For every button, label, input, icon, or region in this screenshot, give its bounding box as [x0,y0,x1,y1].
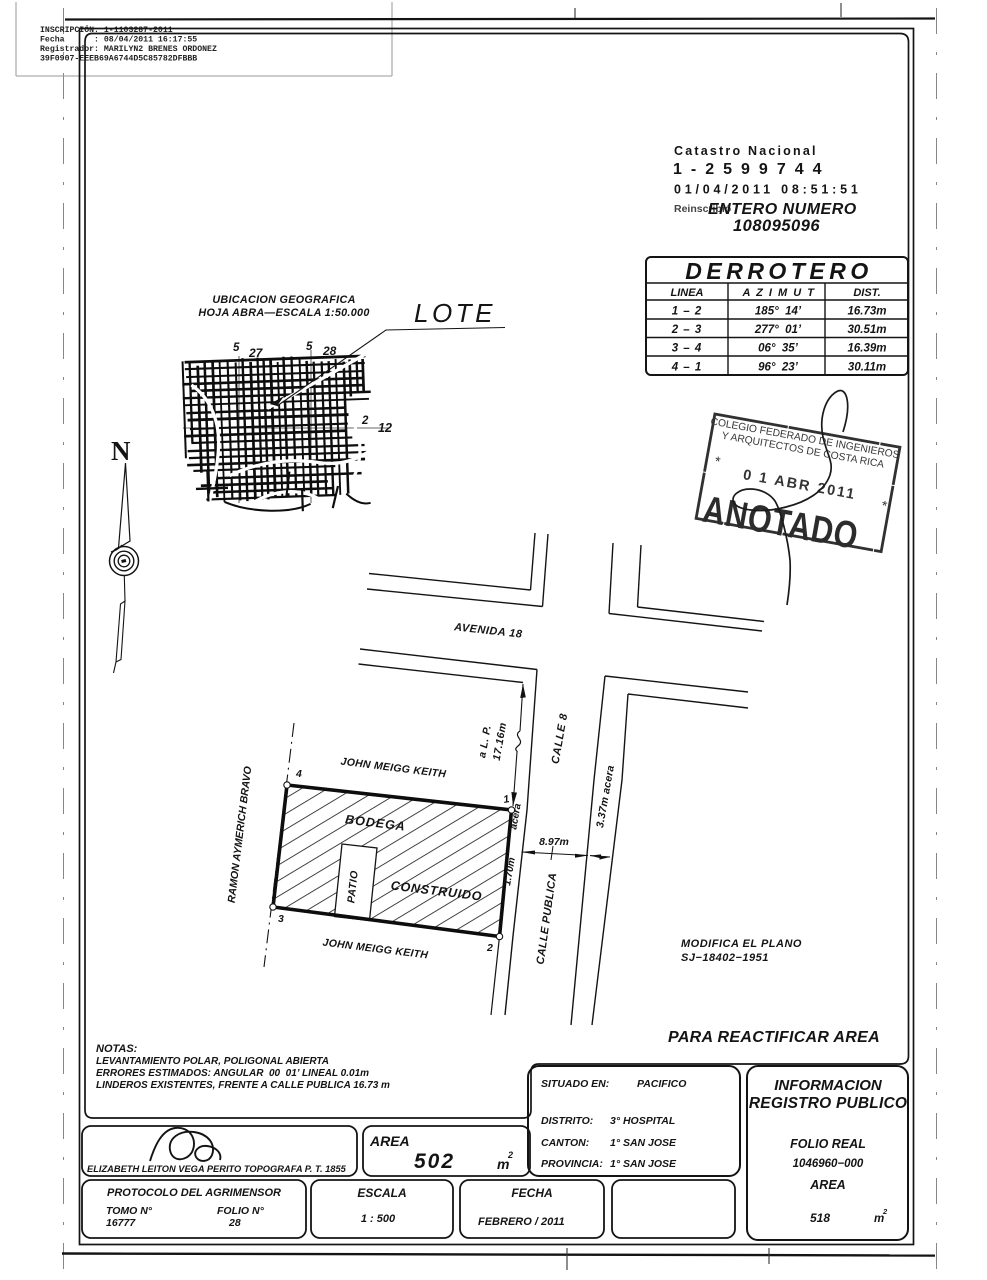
svg-text:FOLIO REAL: FOLIO REAL [790,1137,866,1151]
svg-text:LINDEROS EXISTENTES, FRENTE A: LINDEROS EXISTENTES, FRENTE A CALLE PUBL… [96,1080,390,1091]
svg-text:UBICACION GEOGRAFICA: UBICACION GEOGRAFICA [212,294,355,306]
svg-text:502: 502 [414,1150,455,1173]
svg-text:4: 4 [295,768,302,780]
svg-text:ESCALA: ESCALA [357,1186,406,1200]
svg-text:2: 2 [486,942,493,954]
svg-text:39F0907-EEEB69A6744D5C85782DFB: 39F0907-EEEB69A6744D5C85782DFBBB [40,55,197,64]
svg-text:518: 518 [810,1211,830,1225]
svg-text:28: 28 [322,344,337,358]
svg-text:4 – 1: 4 – 1 [671,361,703,373]
svg-text:PACIFICO: PACIFICO [637,1078,686,1090]
svg-text:1° SAN JOSE: 1° SAN JOSE [610,1137,677,1149]
svg-text:2 – 3: 2 – 3 [671,324,703,336]
svg-text:INFORMACION: INFORMACION [774,1077,883,1094]
svg-text:27: 27 [248,346,264,360]
svg-text:FEBRERO / 2011: FEBRERO / 2011 [478,1216,565,1228]
svg-text:5: 5 [306,341,313,353]
svg-text:DERROTERO: DERROTERO [685,258,872,284]
svg-text:5: 5 [233,342,240,354]
svg-text:LINEA: LINEA [671,287,704,299]
svg-text:PROTOCOLO DEL AGRIMENSOR: PROTOCOLO DEL AGRIMENSOR [107,1187,281,1199]
svg-text:A Z I M U T: A Z I M U T [742,287,816,299]
svg-text:ERRORES ESTIMADOS: ANGULAR 00: ERRORES ESTIMADOS: ANGULAR 00 01’ LINEAL… [96,1068,369,1079]
svg-text:AREA: AREA [369,1133,410,1149]
svg-text:SITUADO EN:: SITUADO EN: [541,1078,609,1090]
svg-text:TOMO N°: TOMO N° [106,1205,153,1217]
svg-text:ELIZABETH LEITON VEGA PERITO T: ELIZABETH LEITON VEGA PERITO TOPOGRAFA P… [87,1164,347,1174]
svg-text:NOTAS:: NOTAS: [96,1043,138,1055]
svg-text:28: 28 [228,1217,241,1229]
svg-text:1 – 2: 1 – 2 [672,306,703,318]
svg-text:ENTERO NUMERO: ENTERO NUMERO [708,201,857,218]
svg-text:16.39m: 16.39m [847,343,886,355]
svg-text:AREA: AREA [809,1178,845,1192]
svg-text:16.73m: 16.73m [847,306,886,318]
svg-text:PARA REACTIFICAR AREA: PARA REACTIFICAR AREA [668,1029,880,1046]
svg-text:Fecha : 08/04/2011 16:17:: Fecha : 08/04/2011 16:17:55 [40,35,197,45]
svg-text:DISTRITO:: DISTRITO: [541,1115,593,1127]
svg-text:12: 12 [378,421,392,435]
svg-text:1046960−000: 1046960−000 [793,1158,864,1170]
svg-text:LEVANTAMIENTO POLAR, POLIGONAL: LEVANTAMIENTO POLAR, POLIGONAL ABIERTA [96,1056,329,1067]
svg-text:2: 2 [361,415,369,427]
svg-text:PROVINCIA:: PROVINCIA: [541,1158,603,1170]
svg-text:06° 35’: 06° 35’ [758,343,799,355]
svg-text:3 – 4: 3 – 4 [672,343,703,355]
svg-text:SJ−18402−1951: SJ−18402−1951 [681,952,769,964]
svg-text:01/04/2011 08:51:51: 01/04/2011 08:51:51 [674,183,862,197]
svg-text:185° 14’: 185° 14’ [755,306,802,318]
svg-text:3° HOSPITAL: 3° HOSPITAL [610,1115,675,1127]
svg-text:1 : 500: 1 : 500 [361,1213,396,1225]
svg-text:HOJA ABRA—ESCALA 1:50.000: HOJA ABRA—ESCALA 1:50.000 [198,307,369,319]
svg-text:1-2599744: 1-2599744 [673,161,831,178]
svg-text:FOLIO N°: FOLIO N° [217,1205,265,1217]
svg-text:LOTE: LOTE [414,298,496,328]
svg-text:N: N [111,436,131,466]
svg-text:30.51m: 30.51m [847,324,886,336]
svg-text:MODIFICA EL PLANO: MODIFICA EL PLANO [681,938,802,950]
svg-text:REGISTRO PUBLICO: REGISTRO PUBLICO [749,1095,907,1112]
svg-text:Catastro Nacional: Catastro Nacional [674,144,818,158]
svg-text:DIST.: DIST. [853,287,880,299]
svg-text:3: 3 [278,913,284,925]
svg-text:8.97m: 8.97m [539,836,569,848]
svg-text:1° SAN JOSE: 1° SAN JOSE [610,1158,677,1170]
svg-text:2: 2 [507,1150,513,1160]
svg-text:108095096: 108095096 [733,217,820,235]
svg-text:2: 2 [882,1207,888,1216]
svg-text:277° 01’: 277° 01’ [754,324,802,336]
svg-text:CANTON:: CANTON: [541,1137,589,1149]
svg-text:30.11m: 30.11m [848,361,886,373]
svg-text:96° 23’: 96° 23’ [758,361,799,373]
svg-text:Registrador: MARILYN2 BRENES O: Registrador: MARILYN2 BRENES ORDONEZ [40,44,217,54]
svg-text:16777: 16777 [106,1217,136,1229]
svg-text:FECHA: FECHA [511,1186,552,1200]
